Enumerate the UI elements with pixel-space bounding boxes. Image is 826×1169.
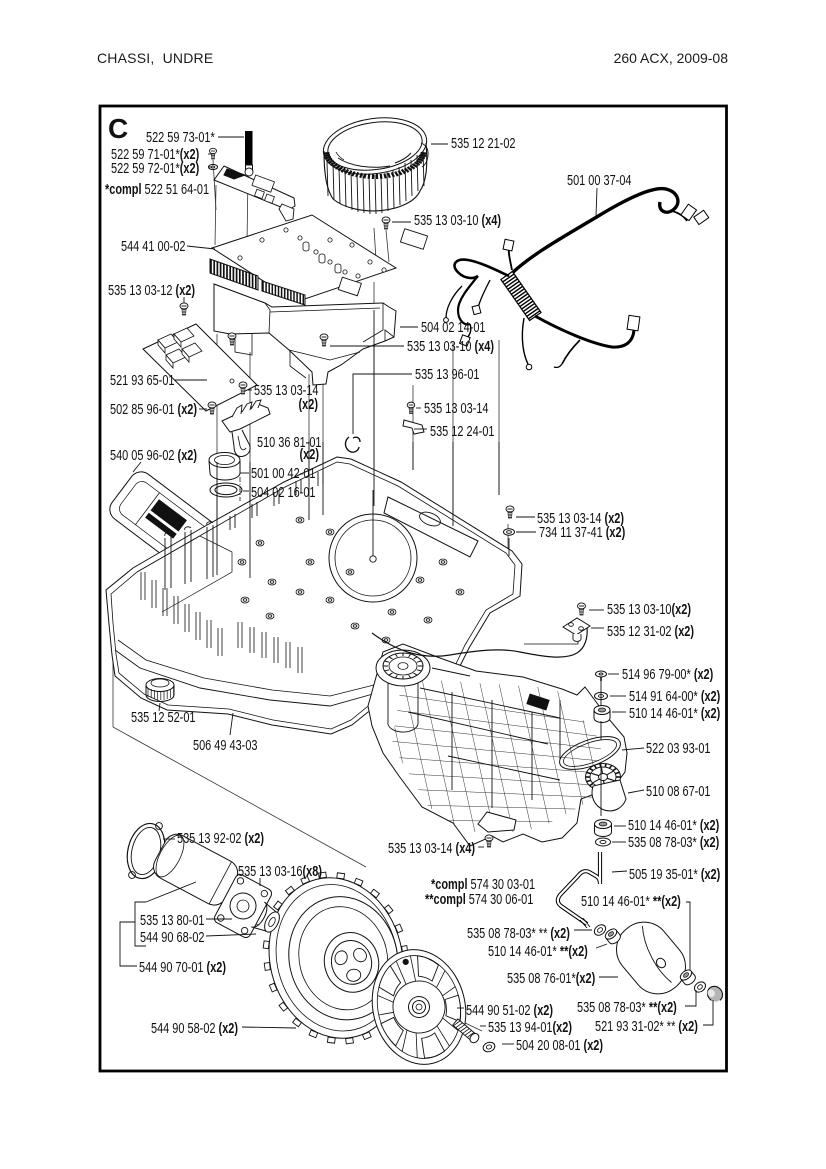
- svg-text:535 12 24-01: 535 12 24-01: [430, 422, 495, 439]
- svg-text:535 12 21-02: 535 12 21-02: [451, 134, 516, 151]
- svg-text:522 59 72-01*(x2): 522 59 72-01*(x2): [111, 159, 199, 176]
- svg-text:544 41 00-02: 544 41 00-02: [121, 237, 186, 254]
- svg-text:510 14 46-01* (x2): 510 14 46-01* (x2): [629, 704, 720, 721]
- svg-text:544 90 51-02 (x2): 544 90 51-02 (x2): [466, 1001, 553, 1018]
- svg-text:540 05 96-02 (x2): 540 05 96-02 (x2): [110, 446, 197, 463]
- svg-text:535 08 78-03* (x2): 535 08 78-03* (x2): [628, 833, 719, 850]
- svg-text:514 96 79-00* (x2): 514 96 79-00* (x2): [622, 665, 713, 682]
- svg-text:505 19 35-01* (x2): 505 19 35-01* (x2): [629, 865, 720, 882]
- svg-text:510 14 46-01* (x2): 510 14 46-01* (x2): [628, 816, 719, 833]
- svg-text:535 13 03-12 (x2): 535 13 03-12 (x2): [108, 281, 195, 298]
- svg-text:*compl 522 51 64-01: *compl 522 51 64-01: [105, 180, 209, 197]
- svg-text:(x2): (x2): [299, 395, 318, 412]
- svg-text:521 93 65-01: 521 93 65-01: [110, 371, 175, 388]
- svg-text:535 13 03-16(x8): 535 13 03-16(x8): [238, 862, 322, 879]
- svg-text:CHASSI, UNDRE: CHASSI, UNDRE: [97, 50, 213, 66]
- svg-text:535 12 52-01: 535 12 52-01: [131, 708, 196, 725]
- svg-text:544 90 68-02: 544 90 68-02: [140, 928, 205, 945]
- svg-text:535 08 76-01*(x2): 535 08 76-01*(x2): [507, 969, 595, 986]
- svg-text:535 13 94-01(x2): 535 13 94-01(x2): [488, 1018, 572, 1035]
- svg-text:504 02 14-01: 504 02 14-01: [421, 318, 486, 335]
- svg-text:535 08 78-03* ** (x2): 535 08 78-03* ** (x2): [467, 924, 570, 941]
- svg-text:510 14 46-01* **(x2): 510 14 46-01* **(x2): [488, 942, 588, 959]
- svg-text:501 00 37-04: 501 00 37-04: [567, 171, 632, 188]
- svg-text:522 03 93-01: 522 03 93-01: [646, 739, 711, 756]
- svg-text:535 13 03-10(x2): 535 13 03-10(x2): [607, 600, 691, 617]
- svg-text:501 00 42-01: 501 00 42-01: [251, 464, 316, 481]
- svg-text:544 90 58-02 (x2): 544 90 58-02 (x2): [151, 1019, 238, 1036]
- svg-text:510 14 46-01* **(x2): 510 14 46-01* **(x2): [581, 892, 681, 909]
- svg-text:521 93 31-02* ** (x2): 521 93 31-02* ** (x2): [595, 1017, 698, 1034]
- svg-text:535 08 78-03* **(x2): 535 08 78-03* **(x2): [577, 998, 677, 1015]
- svg-text:544 90 70-01 (x2): 544 90 70-01 (x2): [139, 958, 226, 975]
- svg-text:535 12 31-02 (x2): 535 12 31-02 (x2): [607, 622, 694, 639]
- svg-text:514 91 64-00* (x2): 514 91 64-00* (x2): [629, 687, 720, 704]
- svg-text:522 59 73-01*: 522 59 73-01*: [146, 128, 215, 145]
- svg-text:510 08 67-01: 510 08 67-01: [646, 782, 711, 799]
- svg-text:535 13 03-10 (x4): 535 13 03-10 (x4): [407, 337, 494, 354]
- svg-text:502 85 96-01 (x2): 502 85 96-01 (x2): [110, 400, 197, 417]
- svg-text:506 49 43-03: 506 49 43-03: [193, 736, 258, 753]
- svg-text:**compl 574 30 06-01: **compl 574 30 06-01: [425, 890, 533, 907]
- svg-text:535 13 03-10 (x4): 535 13 03-10 (x4): [414, 211, 501, 228]
- svg-text:535 13 80-01: 535 13 80-01: [140, 911, 205, 928]
- svg-text:535 13 03-14 (x4): 535 13 03-14 (x4): [388, 839, 475, 856]
- svg-text:734 11 37-41 (x2): 734 11 37-41 (x2): [539, 523, 625, 540]
- svg-text:535 13 03-14: 535 13 03-14: [424, 399, 489, 416]
- svg-text:504 02 16-01: 504 02 16-01: [251, 483, 316, 500]
- svg-text:C: C: [108, 113, 128, 144]
- svg-text:260 ACX, 2009-08: 260 ACX, 2009-08: [614, 50, 729, 66]
- svg-text:(x2): (x2): [300, 445, 319, 462]
- svg-text:535 13 96-01: 535 13 96-01: [415, 365, 480, 382]
- svg-text:535 13 92-02 (x2): 535 13 92-02 (x2): [177, 829, 264, 846]
- svg-text:504 20 08-01 (x2): 504 20 08-01 (x2): [516, 1036, 603, 1053]
